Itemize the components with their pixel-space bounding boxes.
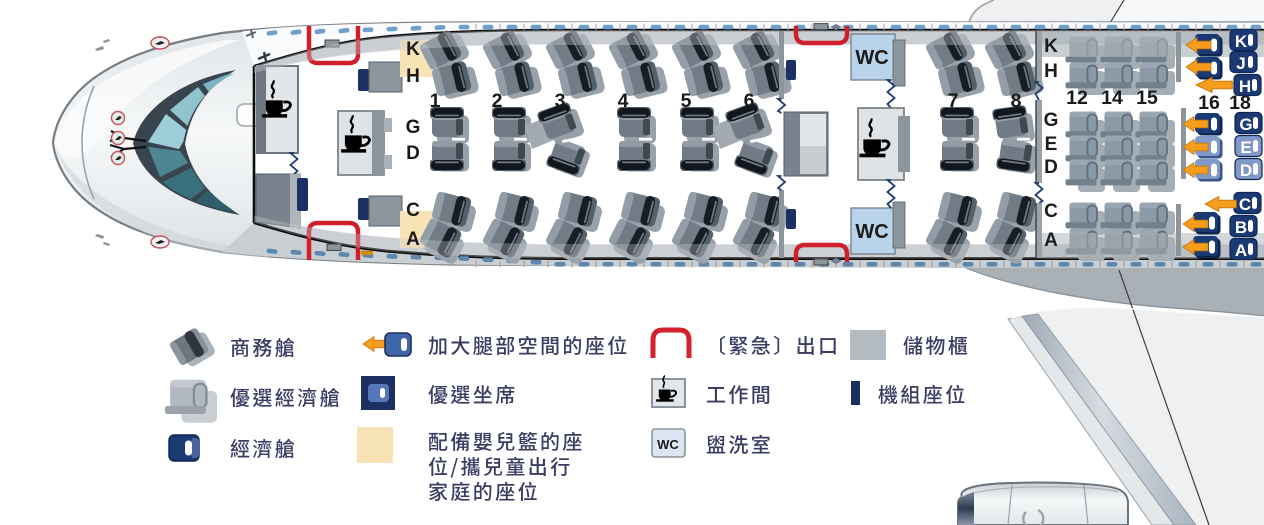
svg-text:12: 12 [1066,87,1088,109]
svg-text:16: 16 [1198,92,1220,114]
svg-text:J: J [1236,54,1245,73]
svg-text:H: H [406,66,420,87]
svg-text:H: H [1239,77,1251,96]
svg-text:K: K [406,39,420,60]
svg-text:15: 15 [1136,87,1158,109]
svg-text:G: G [406,117,421,138]
svg-text:WC: WC [657,437,679,452]
svg-text:14: 14 [1101,87,1123,109]
svg-text:加大腿部空間的座位: 加大腿部空間的座位 [428,330,630,359]
svg-text:D: D [1044,157,1058,178]
svg-text:C: C [1239,195,1251,214]
svg-text:E: E [1045,134,1058,155]
svg-text:盥洗室: 盥洗室 [706,429,773,458]
svg-text:2: 2 [492,90,503,112]
svg-text:E: E [1240,138,1251,157]
svg-text:A: A [1044,230,1058,251]
svg-text:7: 7 [948,90,959,112]
svg-text:5: 5 [681,90,692,112]
svg-text:優選坐席: 優選坐席 [428,379,518,408]
svg-text:A: A [1235,241,1247,260]
svg-text:G: G [1044,110,1059,131]
svg-text:8: 8 [1011,90,1022,112]
svg-text:B: B [1235,218,1247,237]
svg-text:經濟艙: 經濟艙 [230,433,297,462]
svg-text:D: D [406,143,420,164]
svg-text:4: 4 [618,90,629,112]
svg-text:G: G [1239,115,1252,134]
svg-text:A: A [406,229,420,250]
svg-text:儲物櫃: 儲物櫃 [903,330,970,359]
svg-text:〔緊急〕出口: 〔緊急〕出口 [706,330,840,359]
svg-text:優選經濟艙: 優選經濟艙 [230,382,342,411]
svg-text:WC: WC [855,47,888,69]
svg-text:家庭的座位: 家庭的座位 [428,476,540,505]
svg-text:C: C [1044,201,1058,222]
svg-text:C: C [406,200,420,221]
svg-text:3: 3 [555,90,566,112]
svg-text:H: H [1044,61,1058,82]
svg-text:工作間: 工作間 [706,379,773,408]
svg-text:1: 1 [430,90,441,112]
svg-text:K: K [1044,36,1058,57]
svg-text:商務艙: 商務艙 [230,332,297,361]
svg-text:機組座位: 機組座位 [878,379,968,408]
svg-text:6: 6 [744,90,755,112]
svg-text:WC: WC [855,221,888,243]
svg-text:D: D [1240,161,1252,180]
svg-text:K: K [1235,32,1248,51]
